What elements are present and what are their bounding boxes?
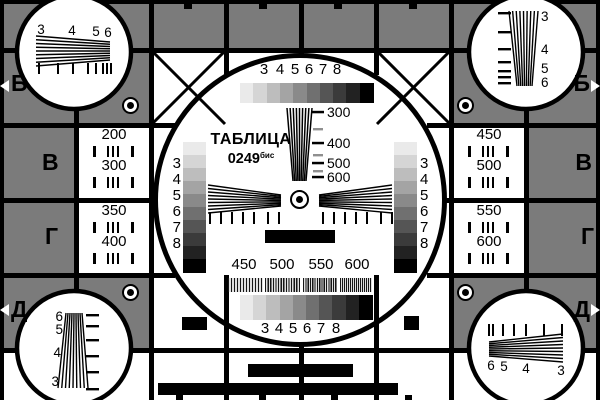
tick-mark [86,371,99,373]
corner-wedge-label: 4 [520,362,532,376]
tick-mark [220,212,222,224]
tick-mark [333,212,335,224]
edge-letter: В [560,151,592,174]
gray-scale-label: 3 [166,156,181,171]
edge-letter: Г [562,225,594,248]
corner-wedge-label: 5 [498,360,510,374]
wedge-line [319,202,392,203]
target-dot [127,289,134,296]
gray-scale-label: 6 [300,321,314,336]
tick-mark [312,111,324,114]
corner-wedge-label: 4 [541,43,549,57]
corner-wedge-label: 4 [43,346,61,360]
edge-letter: Г [45,225,58,248]
tick-mark [498,82,511,84]
edge-letter: Д [558,298,590,321]
tick-mark [87,63,89,74]
target-circle [122,284,139,301]
corner-wedge-label: 5 [45,323,63,337]
tick-mark [312,162,324,165]
tick-mark [366,212,368,224]
edge-letter: Б [558,72,590,95]
target-dot [462,289,469,296]
tick-mark [498,12,511,14]
tick-mark [312,176,324,179]
tick-mark [106,63,108,74]
tick-mark [102,63,104,74]
corner-wedge-label: 6 [485,359,497,373]
tick-mark [380,212,382,224]
gray-scale-label: 3 [258,321,272,336]
tick-mark [278,212,280,224]
wedge-line [524,11,525,86]
tick-mark [313,154,323,156]
tick-mark [86,325,99,327]
corner-wedge-label: 6 [541,76,549,90]
gray-scale-label: 5 [286,321,300,336]
wedge-line [301,108,303,181]
tick-mark [57,63,59,74]
card-code-suffix: бис [260,151,274,160]
wedge-tick-label: 400 [327,136,350,150]
gray-scale-label: 6 [166,204,181,219]
tick-mark [498,31,511,33]
gray-scale-label: 4 [420,172,428,187]
target-dot [296,196,303,203]
tick-mark [513,324,515,336]
card-code: 0249бис [205,151,297,167]
tv-test-card-0249: 3 4 5 6 7 8 3 4 5 6 7 8 3 4 5 6 7 8 3 4 … [0,0,600,400]
wedge-line [489,351,563,352]
tick-mark [498,48,511,50]
card-title: ТАБЛИЦА [205,132,297,148]
edge-arrow-left-icon [0,304,9,316]
resolution-number: 350 [79,203,149,218]
target-dot [462,102,469,109]
tick-mark [86,355,99,357]
wedge-line [208,202,281,203]
target-circle [457,284,474,301]
gray-scale-label: 7 [316,62,330,77]
tick-mark [86,314,99,316]
tick-mark [86,388,99,390]
target-dot [127,102,134,109]
tick-mark [322,212,324,224]
gray-scale-label: 8 [166,236,181,251]
burst-label: 450 [226,257,262,272]
tick-mark [242,212,244,224]
edge-arrow-left-icon [0,80,9,92]
gray-scale-label: 3 [257,62,271,77]
resolution-number: 300 [79,158,149,173]
gray-scale-label: 5 [288,62,302,77]
burst-label: 550 [303,257,339,272]
corner-wedge-label: 4 [66,24,78,38]
tick-mark [231,212,233,224]
card-code-number: 0249 [228,151,260,167]
gray-scale-label: 8 [330,62,344,77]
tick-mark [525,324,527,336]
gray-scale-label: 8 [420,236,428,251]
corner-wedge-label: 6 [102,26,114,40]
burst-label: 500 [264,257,300,272]
tick-mark [391,212,393,224]
tick-mark [86,339,99,341]
tick-mark [498,61,511,63]
wedge-line [489,348,563,349]
target-circle [122,97,139,114]
resolution-number: 200 [79,127,149,142]
gray-scale-label: 4 [166,172,181,187]
tick-mark [267,212,269,224]
gray-scale-label: 7 [420,220,428,235]
tick-mark [313,128,323,130]
corner-wedge-label: 3 [555,364,567,378]
tick-mark [95,63,97,74]
tick-mark [355,212,357,224]
corner-wedge-label: 3 [541,10,549,24]
wedge-line [526,11,527,86]
wedge-line [73,313,74,388]
burst-label: 600 [339,257,375,272]
tick-mark [543,324,545,336]
resolution-number: 550 [454,203,524,218]
tick-mark [110,63,112,74]
tick-mark [498,76,511,78]
tick-mark [38,63,40,74]
gray-scale-label: 6 [420,204,428,219]
edge-letter: Б [11,72,28,95]
tick-mark [344,212,346,224]
wedge-line [76,313,77,388]
corner-wedge-label: 3 [41,375,59,389]
center-target-circle [290,190,309,209]
gray-scale-label: 7 [314,321,328,336]
wedge-tick-label: 600 [327,170,350,184]
gray-scale-label: 7 [166,220,181,235]
tick-mark [561,324,563,336]
corner-wedge-label: 5 [90,25,102,39]
tick-mark [502,324,504,336]
tick-mark [209,212,211,224]
resolution-number: 500 [454,158,524,173]
edge-arrow-right-icon [591,80,600,92]
wedge-tick-label: 300 [327,105,350,119]
tick-mark [498,70,511,72]
gray-scale-label: 5 [420,188,428,203]
tick-mark [312,142,324,145]
gray-scale-label: 3 [420,156,428,171]
tick-mark [492,324,494,336]
resolution-number: 450 [454,127,524,142]
corner-wedge-label: 3 [35,23,47,37]
tick-mark [488,324,490,336]
gray-scale-label: 4 [272,321,286,336]
wedge-tick-label: 500 [327,156,350,170]
resolution-number: 600 [454,234,524,249]
edge-arrow-right-icon [591,304,600,316]
resolution-number: 400 [79,234,149,249]
tick-mark [72,63,74,74]
gray-scale-label: 6 [302,62,316,77]
corner-wedge-label: 5 [541,62,549,76]
target-circle [457,97,474,114]
gray-scale-label: 8 [329,321,343,336]
gray-scale-label: 4 [273,62,287,77]
gray-scale-label: 5 [166,188,181,203]
tick-mark [253,212,255,224]
edge-letter: Д [11,298,27,321]
edge-letter: В [42,151,59,174]
tick-mark [313,170,323,172]
